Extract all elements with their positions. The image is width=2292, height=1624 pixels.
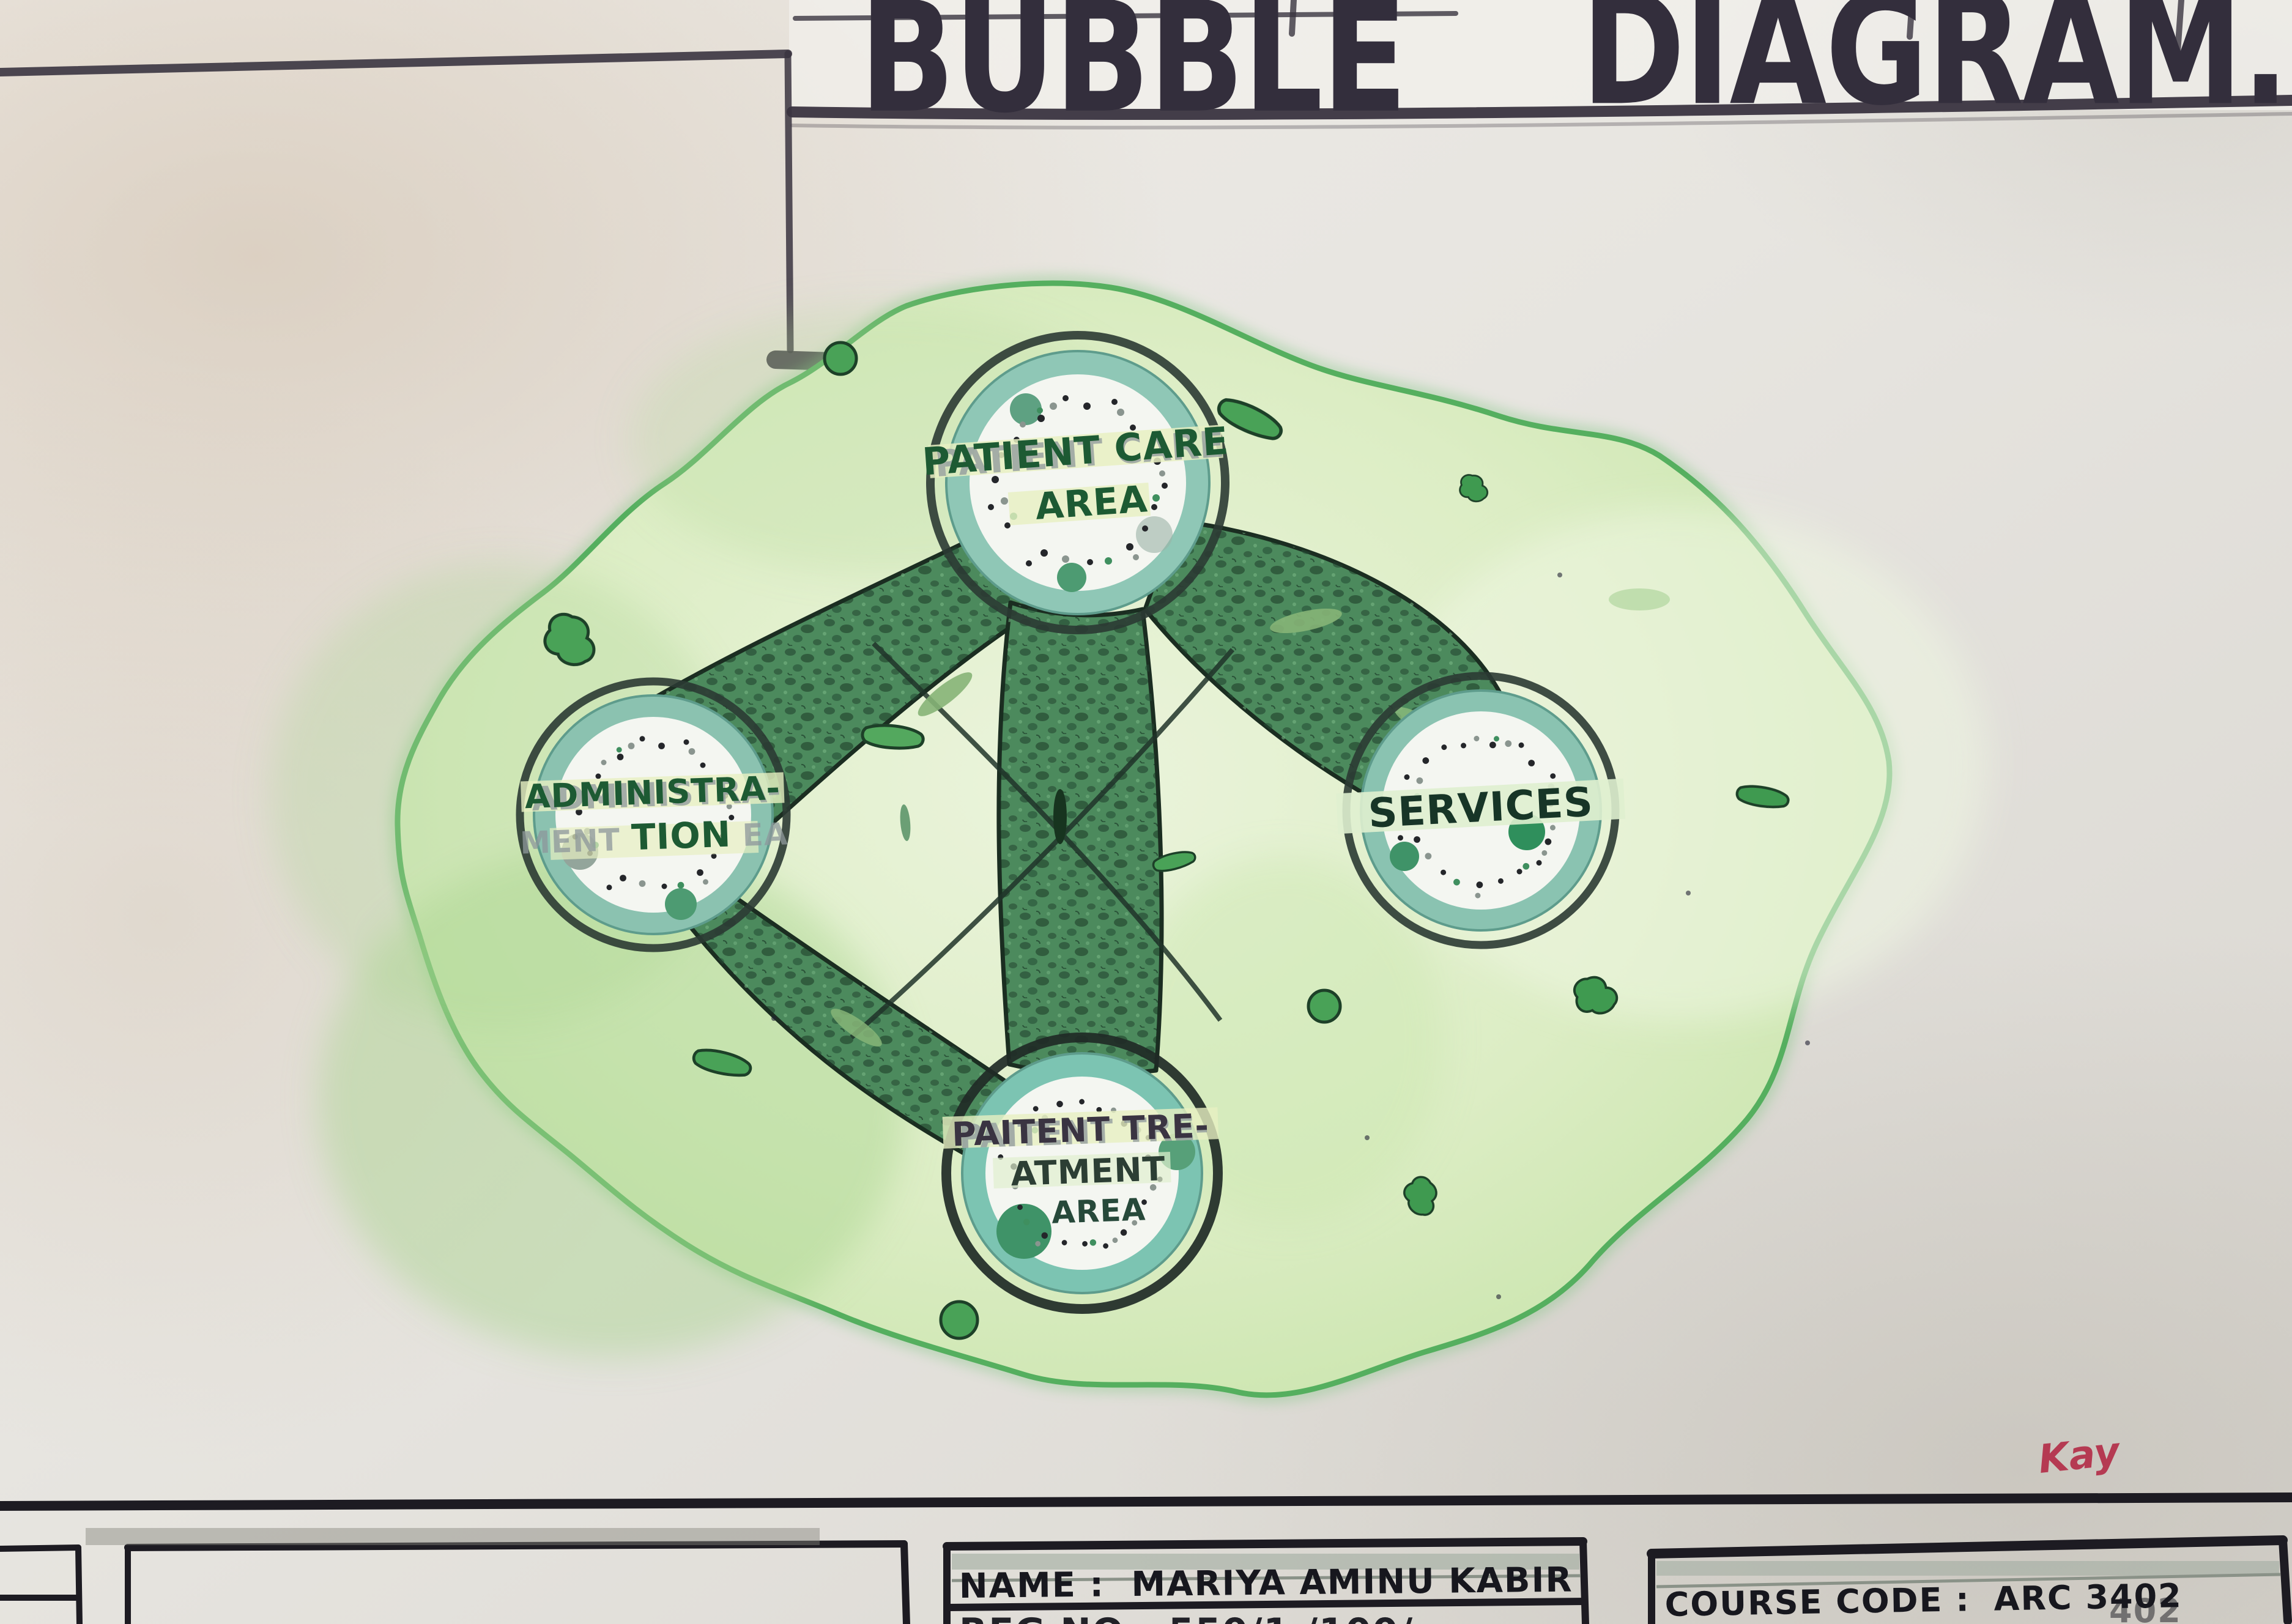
green-patch [941, 1302, 977, 1338]
name-row: NAME : MARIYA AMINU KABIR [959, 1560, 1573, 1606]
green-patch-faint [1609, 588, 1670, 610]
bubble-patient-care: PATIENT CARE PATIENT CARE AREA [921, 335, 1234, 630]
green-patch [825, 343, 856, 374]
bubble-bottom-label-line2: ATMENT [1010, 1149, 1166, 1193]
corridor-top-bottom [999, 603, 1162, 1074]
pencil-ghost-ment: MENT [519, 822, 621, 861]
title-word-diagram: DIAGRAM. [1581, 0, 2288, 139]
red-signature: Kay [2036, 1429, 2123, 1483]
title-word-bubble: BUBBLE [859, 0, 1406, 147]
course-label: COURSE CODE : [1664, 1580, 1970, 1624]
bubble-top-label-line2: AREA [1034, 478, 1149, 528]
bubble-administration: ADMINISTRA- ADMINISTRA- MENT TION EA [517, 681, 788, 948]
bubble-treatment: PAITENT TRE- PAITENT TRE- ATMENT AREA [943, 1037, 1222, 1309]
name-label: NAME : [959, 1565, 1105, 1606]
marker-tion: TION [631, 814, 732, 859]
bubble-bottom-label-line3: AREA [1051, 1192, 1146, 1230]
green-patch [1308, 990, 1340, 1022]
name-value: MARIYA AMINU KABIR [1131, 1560, 1573, 1604]
bubble-diagram-sheet: BUBBLE DIAGRAM. [0, 0, 2292, 1624]
pencil-ghost-ea: EA [742, 816, 789, 853]
bubble-services: SERVICES [1336, 676, 1625, 945]
regno-row: REG NO : 550/1 /100/ [959, 1611, 1414, 1624]
course-ghost: 402 [2109, 1592, 2182, 1624]
